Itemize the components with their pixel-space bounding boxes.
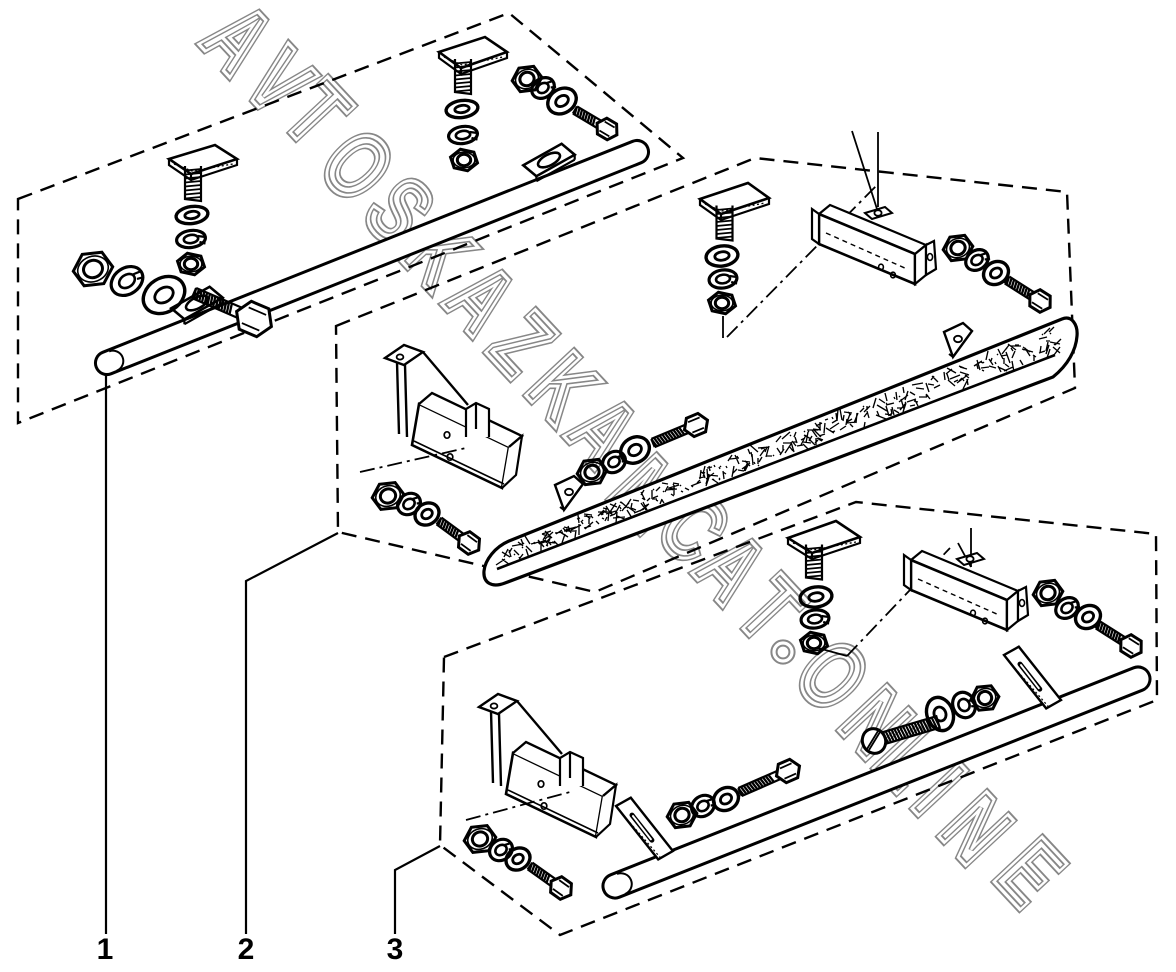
svg-text:3: 3 <box>387 933 404 966</box>
svg-text:1: 1 <box>97 933 114 966</box>
svg-text:2: 2 <box>238 933 255 966</box>
